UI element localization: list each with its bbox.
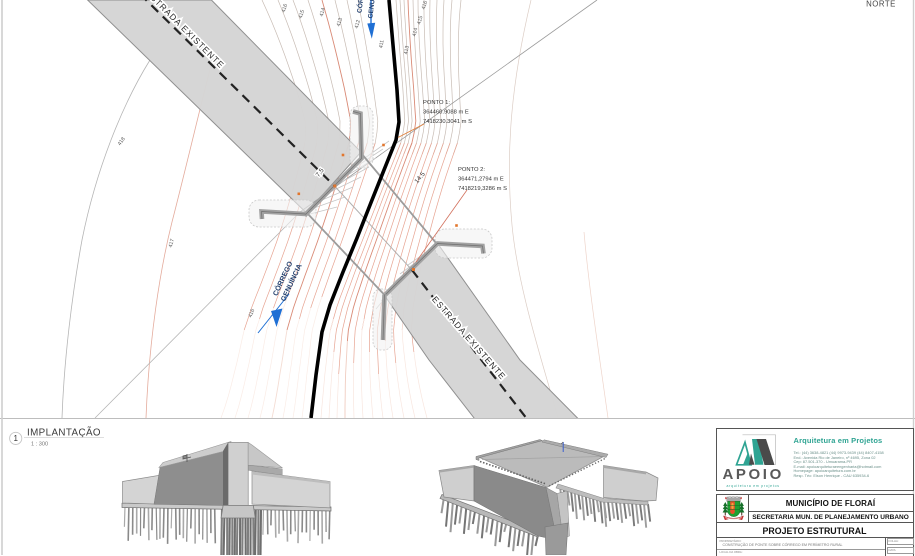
- svg-text:412: 412: [354, 19, 362, 29]
- svg-text:IMPLANTAÇÃO: IMPLANTAÇÃO: [27, 428, 101, 439]
- svg-text:413: 413: [403, 45, 410, 55]
- svg-text:PONTO 1:: PONTO 1:: [423, 100, 450, 106]
- svg-text:PONTO 2:: PONTO 2:: [458, 167, 485, 173]
- svg-text:CÓRREGO: CÓRREGO: [354, 0, 367, 13]
- svg-text:411: 411: [378, 39, 385, 48]
- svg-text:416: 416: [281, 3, 289, 13]
- svg-text:7418230.3041 m S: 7418230.3041 m S: [423, 119, 472, 125]
- svg-text:364471,2794 m E: 364471,2794 m E: [458, 177, 504, 183]
- svg-text:364460.9088 m E: 364460.9088 m E: [423, 110, 469, 116]
- svg-text:416: 416: [248, 308, 257, 318]
- svg-text:416: 416: [421, 0, 429, 10]
- svg-text:413: 413: [336, 17, 344, 27]
- svg-text:415: 415: [416, 15, 424, 25]
- svg-text:415: 415: [298, 9, 306, 19]
- svg-text:1 : 300: 1 : 300: [31, 442, 48, 448]
- svg-text:1: 1: [13, 434, 18, 443]
- svg-text:7418219,3286 m S: 7418219,3286 m S: [458, 186, 507, 192]
- svg-text:GENUÍNCIA: GENUÍNCIA: [365, 0, 378, 19]
- svg-text:414: 414: [319, 7, 327, 17]
- svg-text:417: 417: [168, 238, 176, 248]
- svg-text:418: 418: [117, 136, 127, 147]
- svg-text:414: 414: [412, 27, 420, 37]
- svg-text:NORTE: NORTE: [866, 0, 896, 9]
